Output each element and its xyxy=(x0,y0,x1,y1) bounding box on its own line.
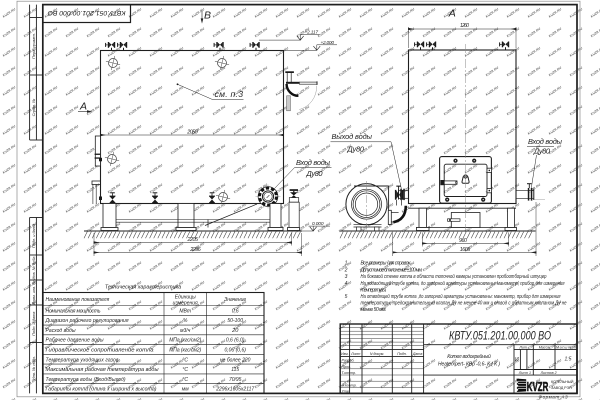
svg-text:1260: 1260 xyxy=(460,23,469,29)
svg-text:температуры, предохранительный: температуры, предохранительный клапан Ду… xyxy=(361,300,567,307)
svg-text:70/95: 70/95 xyxy=(229,377,242,383)
svg-text:А: А xyxy=(448,8,456,20)
svg-text:Подп. и дата: Подп. и дата xyxy=(31,311,36,336)
svg-text:Котел водогрейный: Котел водогрейный xyxy=(447,353,491,360)
svg-text:мм: мм xyxy=(182,387,189,393)
svg-text:Наименование показателя: Наименование показателя xyxy=(46,297,110,303)
svg-text:менее 50 мм.: менее 50 мм. xyxy=(361,307,387,313)
svg-text:На отводящей трубе котла ,до з: На отводящей трубе котла ,до запорной ар… xyxy=(361,293,561,300)
svg-text:5: 5 xyxy=(345,294,348,300)
svg-text:4: 4 xyxy=(345,281,348,287)
svg-text:+2.000: +2.000 xyxy=(321,40,335,46)
svg-text:Диапазон рабочего регулировани: Диапазон рабочего регулирования xyxy=(45,318,129,324)
svg-text:Дата: Дата xyxy=(412,352,422,356)
svg-text:Расход воды: Расход воды xyxy=(46,328,76,334)
svg-text:Температура уходящих газов: Температура уходящих газов xyxy=(46,357,119,363)
svg-text:Heaterxpert- КВр -0,6- К ( К ): Heaterxpert- КВр -0,6- К ( К ) xyxy=(438,362,500,368)
svg-text:КВТУ.051.201.00.000 ВО: КВТУ.051.201.00.000 ВО xyxy=(449,329,551,343)
svg-text:На боковой стенке котла в обла: На боковой стенке котла в области топочн… xyxy=(361,273,547,280)
svg-text:Вход воды: Вход воды xyxy=(296,158,331,167)
svg-text:Техническая характеристика: Техническая характеристика xyxy=(105,285,181,291)
svg-text:Справ. №: Справ. № xyxy=(31,98,36,116)
svg-text:Т.контр.: Т.контр. xyxy=(342,371,357,375)
svg-text:Ду80: Ду80 xyxy=(533,146,551,155)
svg-text:Пров.: Пров. xyxy=(342,365,351,369)
svg-text:А: А xyxy=(79,101,87,113)
svg-text:Инв. № дубл.: Инв. № дубл. xyxy=(31,256,36,280)
svg-text:На подводящей трубе котла, д: На подводящей трубе котла, до запорной а… xyxy=(361,280,565,287)
svg-text:см. п.3: см. п.3 xyxy=(215,89,244,99)
svg-text:°С: °С xyxy=(182,357,188,363)
svg-text:Инв. № подл.: Инв. № подл. xyxy=(31,356,36,380)
svg-text:температуры.: температуры. xyxy=(361,287,387,293)
svg-text:2: 2 xyxy=(344,267,348,273)
svg-text:Допустимое отклонение ±100 мм: Допустимое отклонение ±100 мм. xyxy=(360,267,423,273)
svg-text:Н.контр.: Н.контр. xyxy=(342,383,357,387)
svg-text:МПа (кгс/см2): МПа (кгс/см2) xyxy=(169,348,201,354)
svg-text:КВТУ.051.201.00.000 ВО: КВТУ.051.201.00.000 ВО xyxy=(47,9,126,16)
svg-text:1: 1 xyxy=(345,261,348,267)
svg-text:Утв.: Утв. xyxy=(342,390,350,394)
svg-text:Выход воды: Выход воды xyxy=(332,132,373,141)
svg-text:Лист: Лист xyxy=(350,352,360,356)
svg-text:115: 115 xyxy=(231,367,239,373)
svg-text:Разраб.: Разраб. xyxy=(342,359,355,363)
svg-text:KVZR: KVZR xyxy=(527,379,549,394)
svg-text:2205: 2205 xyxy=(187,237,200,243)
svg-text:1605: 1605 xyxy=(460,247,472,253)
svg-text:Лит.: Лит. xyxy=(518,346,527,350)
svg-text:Значение: Значение xyxy=(224,297,246,303)
svg-text:В: В xyxy=(204,10,211,22)
svg-text:0,06 (0,6): 0,06 (0,6) xyxy=(224,348,246,354)
svg-text:м3/ч: м3/ч xyxy=(180,328,191,334)
svg-text:2296: 2296 xyxy=(189,247,201,253)
svg-text:0,6 (6,0): 0,6 (6,0) xyxy=(226,338,245,344)
svg-text:ЗАВОД РЭП: ЗАВОД РЭП xyxy=(551,386,572,390)
svg-text:960: 960 xyxy=(459,238,467,244)
svg-text:N докум.: N докум. xyxy=(370,352,385,356)
svg-text:Листов 2: Листов 2 xyxy=(540,371,557,375)
svg-text:И: И xyxy=(515,357,519,363)
svg-text:Масса: Масса xyxy=(539,346,550,350)
svg-text:не более 220: не более 220 xyxy=(220,357,251,363)
svg-text:3: 3 xyxy=(345,274,348,280)
svg-text:Ду80: Ду80 xyxy=(306,169,324,178)
svg-text:Масштаб: Масштаб xyxy=(556,346,577,350)
svg-text:Рабочее давление воды: Рабочее давление воды xyxy=(46,338,104,344)
svg-text:Температура воды (Вход/Выход): Температура воды (Вход/Выход) xyxy=(46,377,126,383)
svg-text:°С: °С xyxy=(182,367,188,373)
svg-text:Ду80: Ду80 xyxy=(347,144,365,153)
svg-text:20: 20 xyxy=(231,328,239,334)
svg-text:Подп. и дата: Подп. и дата xyxy=(31,223,36,248)
svg-text:Все размеры для справок: Все размеры для справок xyxy=(361,261,412,267)
svg-text:КОТЕЛЬНЫЙ: КОТЕЛЬНЫЙ xyxy=(551,380,574,384)
svg-text:Вход воды: Вход воды xyxy=(528,137,563,146)
svg-text:2050: 2050 xyxy=(186,129,198,135)
svg-text:Взам. инв. №: Взам. инв. № xyxy=(31,280,36,305)
svg-text:Перв. примен.: Перв. примен. xyxy=(31,33,36,59)
svg-text:%: % xyxy=(183,318,188,324)
svg-text:Гидравлическое сопротивление к: Гидравлическое сопротивление котла xyxy=(46,348,154,354)
svg-text:измерения: измерения xyxy=(173,300,198,306)
svg-text:0,6: 0,6 xyxy=(232,308,239,314)
svg-text:Лист 1: Лист 1 xyxy=(518,371,531,375)
svg-text:Подп.: Подп. xyxy=(397,352,407,356)
svg-text:Габариты котла (длина х ширина: Габариты котла (длина х ширина х высота) xyxy=(46,387,157,393)
svg-text:Формат А3: Формат А3 xyxy=(539,395,568,400)
svg-text:Номинальная мощность: Номинальная мощность xyxy=(46,308,101,314)
svg-text:0.000: 0.000 xyxy=(312,221,324,227)
svg-text:Максимальная рабочая температу: Максимальная рабочая температура воды xyxy=(46,367,159,373)
svg-text:2296х1605х2117: 2296х1605х2117 xyxy=(215,387,254,393)
svg-text:Изм.: Изм. xyxy=(341,352,349,356)
svg-text:МПа (кгс/см2): МПа (кгс/см2) xyxy=(169,338,201,344)
svg-text:МВт: МВт xyxy=(179,308,191,314)
svg-text:1:5: 1:5 xyxy=(565,357,572,363)
svg-text:°С: °С xyxy=(182,377,188,383)
svg-text:+2.117: +2.117 xyxy=(305,30,319,36)
svg-text:50-100: 50-100 xyxy=(227,318,243,324)
